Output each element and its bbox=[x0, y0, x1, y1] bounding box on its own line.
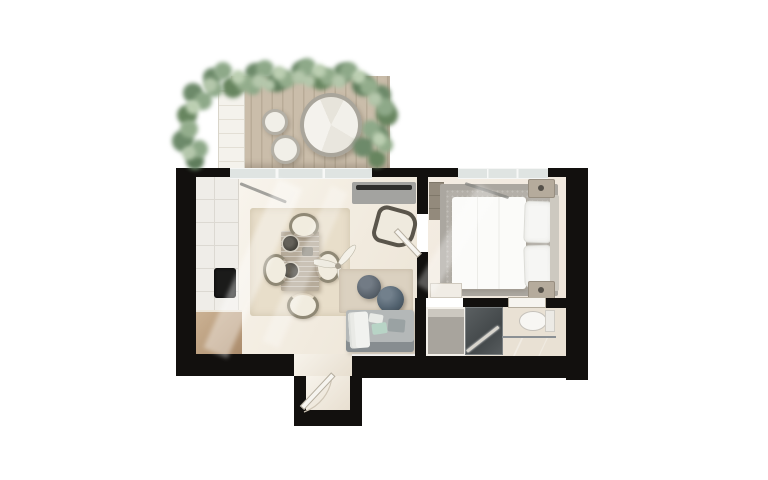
terrace-lounger-mat bbox=[218, 90, 245, 172]
toilet bbox=[519, 311, 547, 331]
corner-wood-cabinet bbox=[194, 310, 242, 356]
outer-wall-top-left bbox=[176, 168, 230, 177]
sofa bbox=[346, 310, 414, 352]
vanity-bench bbox=[430, 283, 462, 298]
partition-living-bedroom bbox=[417, 176, 428, 214]
table-lamp bbox=[538, 185, 544, 191]
sofa-pillow bbox=[387, 318, 405, 332]
dining-chair bbox=[289, 213, 319, 239]
nightstand bbox=[528, 179, 555, 198]
sofa-pillow-mint bbox=[371, 322, 387, 335]
storage-niche bbox=[426, 307, 466, 356]
round-side-table bbox=[271, 135, 300, 164]
table-lamp bbox=[538, 287, 544, 293]
place-setting bbox=[283, 236, 298, 251]
double-bed bbox=[452, 197, 526, 289]
partition-living-hall bbox=[415, 298, 426, 356]
foliage-light-layer bbox=[0, 0, 14, 14]
bedroom-window bbox=[458, 168, 548, 179]
partition-bedroom-bathroom bbox=[543, 298, 567, 308]
cooktop bbox=[214, 268, 236, 298]
round-side-table bbox=[262, 109, 288, 135]
floor-plan-render bbox=[0, 0, 768, 480]
outer-wall-left bbox=[176, 168, 196, 376]
dining-chair bbox=[287, 292, 319, 319]
table-centerpiece bbox=[302, 247, 313, 256]
terrace-sliding-window bbox=[230, 168, 372, 179]
dining-chair bbox=[263, 254, 289, 286]
toilet-cistern bbox=[545, 310, 555, 332]
round-daybed bbox=[300, 93, 362, 157]
outer-wall-right bbox=[566, 168, 588, 380]
partition-living-bedroom bbox=[417, 252, 428, 298]
partition-bedroom-bathroom bbox=[463, 298, 508, 307]
outer-wall-bottom-left bbox=[176, 354, 294, 376]
bed-pillow bbox=[523, 201, 552, 244]
niche-shelf bbox=[428, 309, 464, 317]
sofa-throw-blanket bbox=[348, 311, 370, 348]
tv-console bbox=[352, 182, 416, 204]
bathroom-door bbox=[508, 297, 546, 308]
headboard bbox=[550, 195, 559, 291]
ball-pouf bbox=[377, 286, 404, 313]
outer-wall-bottom-right bbox=[352, 356, 588, 378]
stone-vanity-counter bbox=[502, 336, 556, 358]
outer-wall-top-middle bbox=[372, 168, 458, 177]
tv-screen bbox=[356, 185, 412, 190]
